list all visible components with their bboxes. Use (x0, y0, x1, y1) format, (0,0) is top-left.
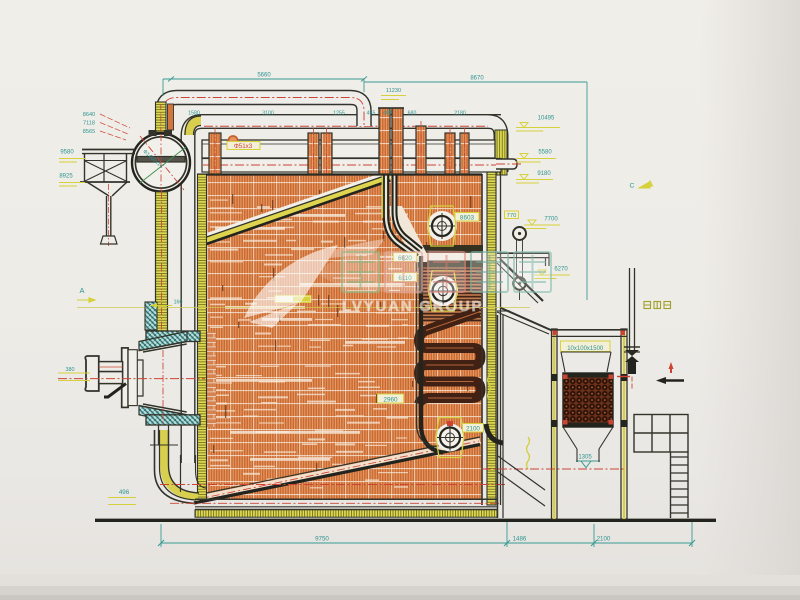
svg-text:1486: 1486 (513, 536, 527, 543)
svg-text:11230: 11230 (386, 88, 401, 94)
svg-text:C: C (630, 183, 635, 190)
svg-text:9750: 9750 (315, 536, 329, 543)
svg-text:3100: 3100 (262, 111, 274, 117)
svg-text:496: 496 (119, 489, 130, 496)
svg-text:770: 770 (507, 213, 517, 219)
svg-text:10x100x1500: 10x100x1500 (567, 346, 604, 352)
svg-text:7700: 7700 (544, 217, 558, 223)
svg-text:1255: 1255 (333, 111, 345, 117)
svg-text:8925: 8925 (59, 174, 73, 180)
svg-text:8640: 8640 (83, 112, 95, 118)
svg-text:1580: 1580 (188, 111, 200, 117)
svg-text:2100: 2100 (466, 425, 480, 432)
svg-text:380: 380 (66, 367, 75, 373)
svg-text:8670: 8670 (470, 76, 484, 82)
svg-text:10495: 10495 (538, 116, 555, 122)
svg-text:1305: 1305 (578, 455, 592, 461)
svg-text:5580: 5580 (538, 150, 552, 156)
svg-text:6270: 6270 (554, 267, 568, 273)
svg-text:680: 680 (408, 111, 417, 117)
svg-text:8565: 8565 (83, 129, 95, 135)
svg-text:Φ51x3: Φ51x3 (234, 143, 253, 150)
svg-text:455: 455 (367, 111, 376, 117)
svg-text:2960: 2960 (383, 396, 398, 403)
svg-text:9180: 9180 (537, 171, 551, 177)
svg-text:9580: 9580 (60, 150, 74, 156)
svg-text:160: 160 (174, 300, 183, 306)
svg-text:2100: 2100 (597, 536, 611, 543)
svg-text:7118: 7118 (83, 121, 95, 127)
svg-text:8603: 8603 (460, 214, 475, 221)
svg-text:2180: 2180 (454, 111, 466, 117)
svg-text:LVYUAN GROUP: LVYUAN GROUP (342, 298, 483, 315)
svg-text:A: A (79, 286, 84, 295)
svg-text:480: 480 (383, 111, 392, 117)
svg-text:5660: 5660 (257, 73, 271, 79)
